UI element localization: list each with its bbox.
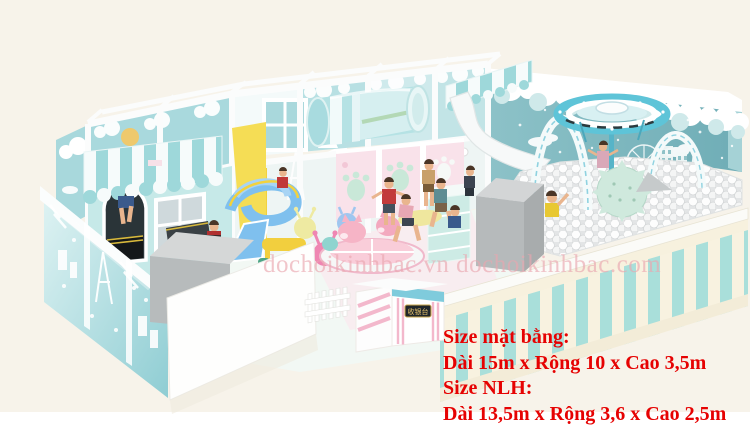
size-info-line-1: Size mặt bằng: [443,325,748,351]
house-sign [148,160,162,166]
size-info-line-2: Dài 15m x Rộng 10 x Cao 3,5m [443,351,748,377]
sun-decal [121,128,139,146]
size-info-caption: Size mặt bằng: Dài 15m x Rộng 10 x Cao 3… [443,325,748,427]
playground-product-image: 收银台 dochoikinhbac.vn dochoikinhbac.com S… [0,0,750,434]
desk-sign-text: 收银台 [408,307,429,316]
size-info-line-3: Size NLH: [443,376,748,402]
watermark-text: dochoikinhbac.vn dochoikinhbac.com [263,251,743,279]
size-info-line-4: Dài 13,5m x Rộng 3,6 x Cao 2,5m [443,402,748,428]
